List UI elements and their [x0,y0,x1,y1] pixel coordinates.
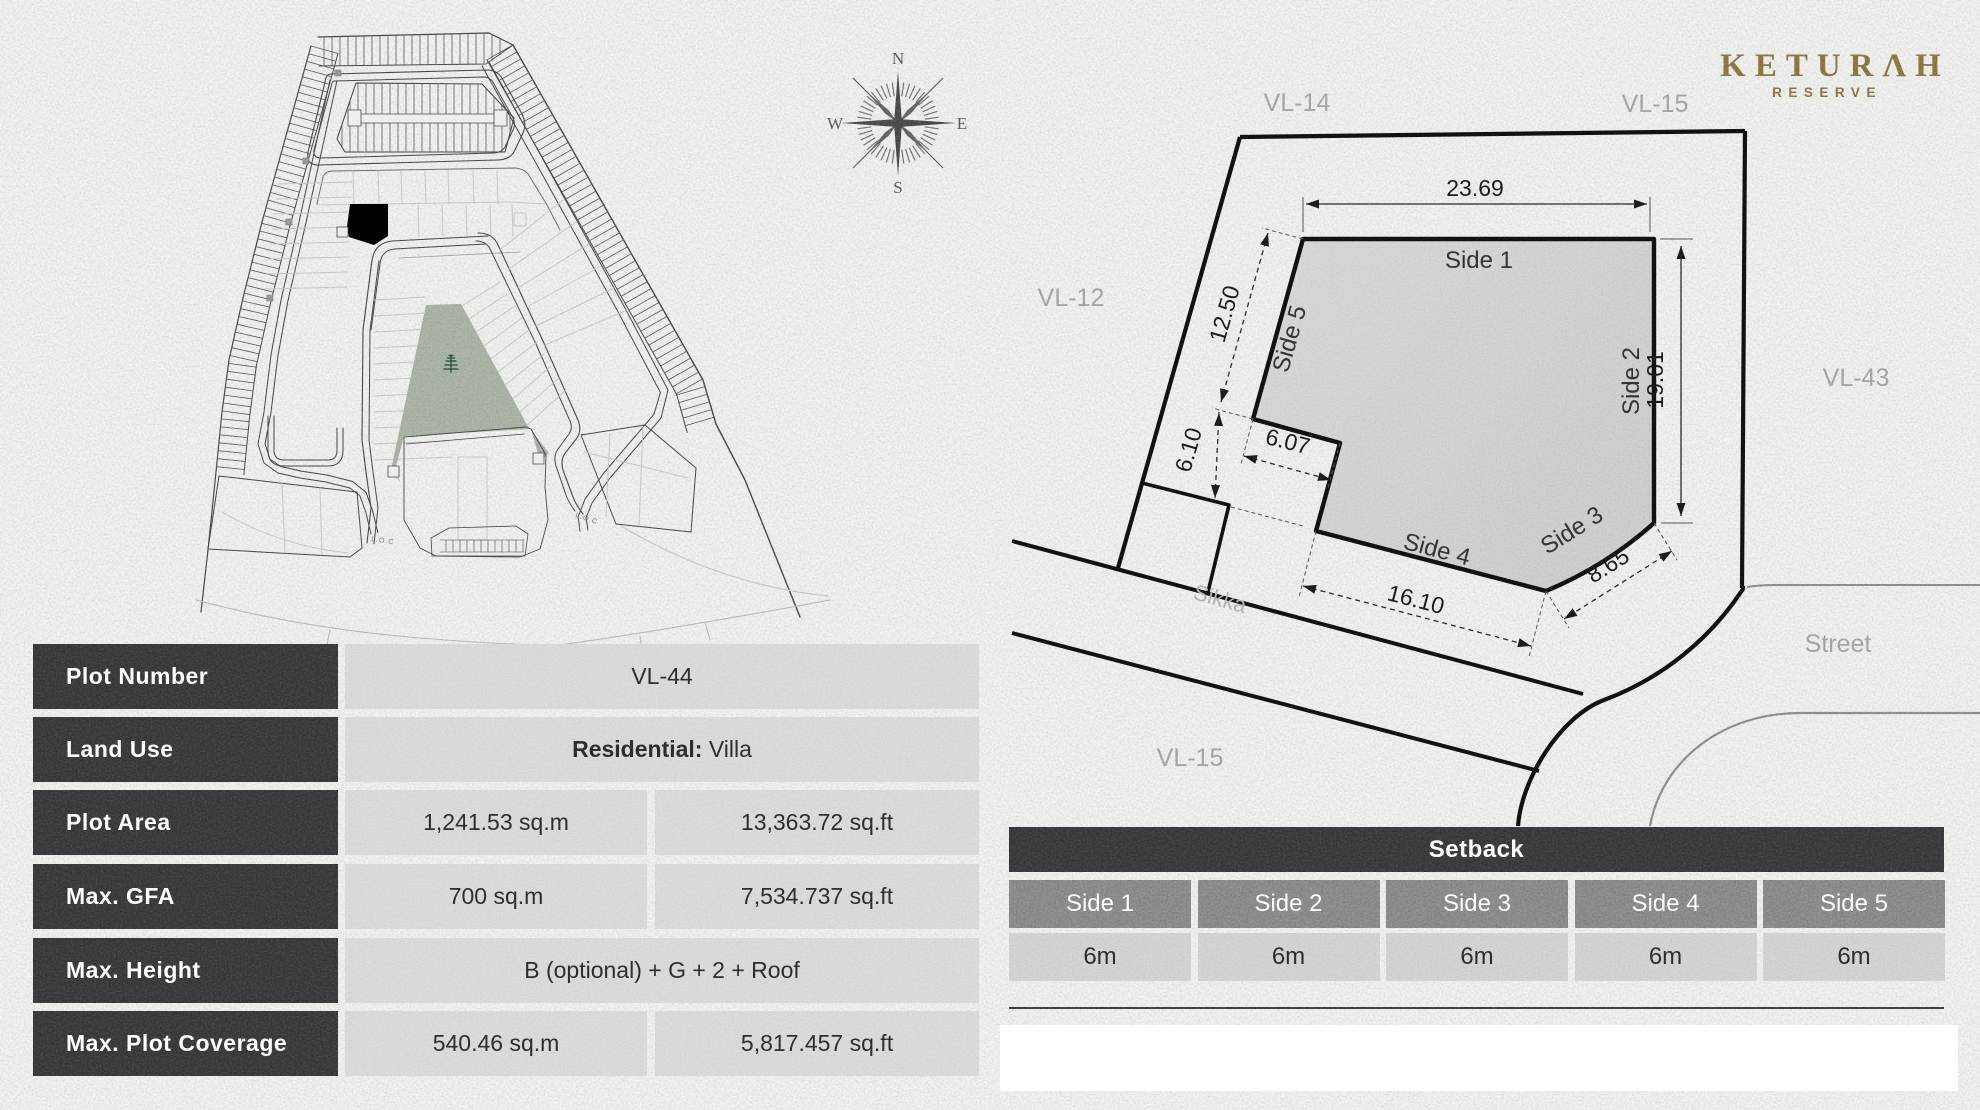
svg-text:S: S [893,178,902,197]
svg-text:VL-12: VL-12 [1038,284,1105,312]
svg-text:RESERVE: RESERVE [1772,85,1882,100]
svg-text:VL-43: VL-43 [1823,364,1890,392]
svg-text:23.69: 23.69 [1446,175,1504,201]
svg-text:VL-15: VL-15 [1622,90,1689,118]
svg-text:W: W [827,114,844,133]
svg-text:E: E [957,114,967,133]
svg-text:VL-15: VL-15 [1157,744,1224,772]
svg-text:19.01: 19.01 [1642,351,1668,409]
svg-text:Street: Street [1805,630,1872,658]
svg-text:Side 2: Side 2 [1618,347,1645,415]
svg-text:N: N [892,49,904,68]
svg-text:VL-14: VL-14 [1264,89,1331,117]
svg-text:KETURΛH: KETURΛH [1720,48,1950,84]
svg-text:Side 1: Side 1 [1445,247,1513,274]
